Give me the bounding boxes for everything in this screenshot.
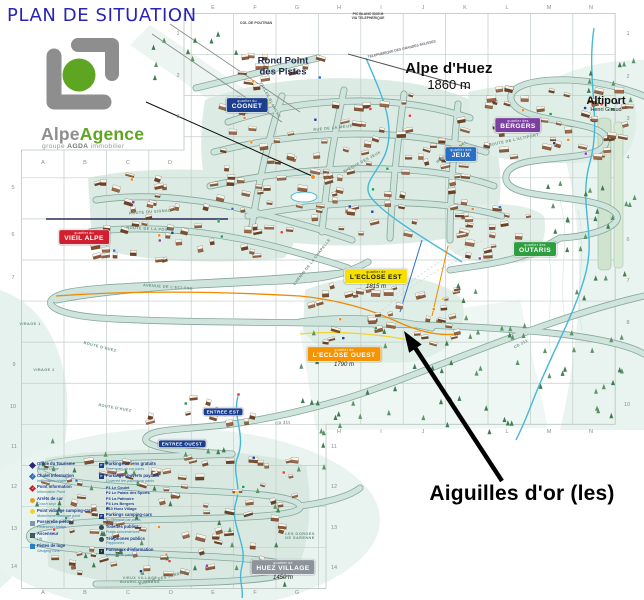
building xyxy=(274,138,280,143)
poi-marker xyxy=(471,208,474,211)
building xyxy=(264,463,268,468)
building xyxy=(135,525,141,528)
building xyxy=(261,76,270,82)
building xyxy=(144,566,151,571)
tree xyxy=(551,203,555,208)
building xyxy=(457,117,466,124)
building xyxy=(371,290,380,297)
building xyxy=(531,252,538,257)
building xyxy=(91,504,96,511)
tree xyxy=(153,75,157,80)
tree xyxy=(558,181,562,186)
building xyxy=(298,185,308,192)
poi-marker xyxy=(106,507,109,510)
building xyxy=(264,186,271,191)
building xyxy=(366,162,371,166)
poi-marker xyxy=(522,109,525,112)
building xyxy=(323,340,329,345)
tree xyxy=(216,31,220,36)
building xyxy=(253,106,262,109)
building xyxy=(132,221,139,227)
building xyxy=(364,141,371,148)
building xyxy=(228,175,235,180)
building xyxy=(69,519,73,525)
resort-map-canvas xyxy=(0,0,644,600)
poi-marker xyxy=(478,257,481,260)
building xyxy=(257,190,263,194)
building xyxy=(226,419,234,426)
poi-marker xyxy=(184,402,187,405)
building xyxy=(185,411,191,416)
building xyxy=(189,395,197,400)
poi-marker xyxy=(168,560,171,563)
building xyxy=(239,108,246,115)
building xyxy=(526,214,531,218)
building xyxy=(92,252,101,259)
building xyxy=(253,224,258,230)
building xyxy=(194,223,201,228)
building xyxy=(461,174,470,179)
building xyxy=(264,63,269,69)
building xyxy=(485,102,493,109)
building xyxy=(375,312,381,317)
ice-rink xyxy=(291,192,317,202)
poi-marker xyxy=(129,464,132,467)
building xyxy=(291,457,299,463)
poi-marker xyxy=(215,407,218,410)
building xyxy=(288,68,298,75)
building xyxy=(238,71,247,75)
building xyxy=(438,138,445,143)
building xyxy=(288,474,293,478)
tree xyxy=(487,429,491,434)
building xyxy=(421,335,428,340)
poi-marker xyxy=(252,80,255,83)
poi-marker xyxy=(584,107,587,110)
building xyxy=(402,169,410,174)
building xyxy=(167,225,174,231)
building xyxy=(101,253,110,259)
poi-marker xyxy=(139,570,142,573)
building xyxy=(550,138,556,141)
building xyxy=(521,96,529,102)
building xyxy=(249,249,254,255)
building xyxy=(256,63,264,69)
poi-marker xyxy=(220,235,223,238)
poi-marker xyxy=(113,249,116,252)
building xyxy=(565,127,572,134)
building xyxy=(603,148,611,153)
building xyxy=(442,157,446,162)
building xyxy=(448,188,456,195)
building xyxy=(593,153,602,160)
building xyxy=(165,233,170,239)
building xyxy=(459,164,469,168)
building xyxy=(209,414,217,421)
building xyxy=(536,106,544,112)
poi-marker xyxy=(369,108,372,111)
building xyxy=(397,131,406,138)
building xyxy=(69,560,76,566)
building xyxy=(277,175,286,180)
poi-marker xyxy=(549,113,552,116)
poi-marker xyxy=(171,231,174,234)
poi-marker xyxy=(386,167,389,170)
building xyxy=(540,118,548,123)
building xyxy=(240,208,245,213)
poi-marker xyxy=(339,318,342,321)
building xyxy=(491,244,496,248)
building xyxy=(465,217,473,222)
poi-marker xyxy=(441,298,444,301)
building xyxy=(499,147,509,153)
poi-marker xyxy=(252,456,255,459)
building xyxy=(236,97,242,103)
building xyxy=(549,88,555,93)
building xyxy=(90,546,95,551)
building xyxy=(226,458,234,464)
building xyxy=(229,129,237,135)
building xyxy=(320,348,327,355)
building xyxy=(67,477,72,482)
building xyxy=(155,257,163,262)
building xyxy=(356,288,364,294)
building xyxy=(449,179,456,186)
building xyxy=(287,153,295,160)
building xyxy=(146,419,155,425)
building xyxy=(237,178,244,183)
building xyxy=(515,233,522,239)
building xyxy=(51,556,58,560)
building xyxy=(402,101,406,105)
building xyxy=(147,201,154,207)
building xyxy=(278,502,284,507)
poi-marker xyxy=(348,205,351,208)
building xyxy=(441,306,448,311)
building xyxy=(486,95,496,102)
building xyxy=(256,185,262,189)
building xyxy=(339,226,344,230)
building xyxy=(259,143,268,150)
poi-marker xyxy=(243,117,246,120)
building xyxy=(100,180,106,186)
tree xyxy=(210,38,214,43)
building xyxy=(204,511,210,514)
building xyxy=(113,252,118,258)
poi-marker xyxy=(217,220,220,223)
poi-marker xyxy=(318,76,321,79)
building xyxy=(90,529,99,533)
building xyxy=(455,213,464,217)
poi-marker xyxy=(408,114,411,117)
building xyxy=(205,399,211,406)
building xyxy=(174,204,179,211)
poi-marker xyxy=(461,142,464,145)
tree xyxy=(547,373,551,378)
building xyxy=(368,317,376,324)
building xyxy=(271,515,279,522)
building xyxy=(108,468,117,474)
building xyxy=(278,524,287,530)
building xyxy=(607,132,616,139)
building xyxy=(227,180,235,186)
building xyxy=(130,250,136,256)
building xyxy=(130,206,136,213)
building xyxy=(176,239,182,245)
poi-marker xyxy=(53,528,56,531)
building xyxy=(258,460,263,465)
building xyxy=(248,53,254,58)
building xyxy=(92,511,98,516)
building xyxy=(250,543,256,549)
poi-marker xyxy=(600,103,603,106)
tree xyxy=(234,50,238,55)
tree xyxy=(543,348,547,353)
poi-marker xyxy=(75,479,78,482)
poi-marker xyxy=(371,210,374,213)
tree xyxy=(546,184,550,189)
tree xyxy=(565,247,569,252)
building xyxy=(249,126,257,131)
building xyxy=(102,247,110,253)
building xyxy=(495,86,502,92)
building xyxy=(244,227,251,233)
building xyxy=(465,239,475,247)
poi-marker xyxy=(553,142,556,145)
building xyxy=(384,191,392,197)
building xyxy=(223,409,231,416)
building xyxy=(253,84,260,90)
building xyxy=(224,165,229,171)
building xyxy=(430,144,436,148)
agency-location-marker xyxy=(311,175,316,180)
building xyxy=(321,140,327,144)
building xyxy=(212,534,219,539)
poi-marker xyxy=(165,553,168,556)
poi-marker xyxy=(268,102,271,105)
poi-marker xyxy=(498,206,501,209)
poi-marker xyxy=(158,526,161,529)
building xyxy=(379,128,384,133)
building xyxy=(359,232,364,236)
poi-marker xyxy=(65,517,68,520)
building xyxy=(615,87,624,93)
poi-marker xyxy=(314,118,317,121)
tree xyxy=(301,398,305,403)
building xyxy=(499,131,505,137)
building xyxy=(203,503,208,508)
poi-marker xyxy=(342,337,345,340)
poi-marker xyxy=(158,239,161,242)
building xyxy=(241,54,249,60)
building xyxy=(78,571,83,575)
building xyxy=(426,316,431,322)
building xyxy=(103,225,110,231)
building xyxy=(467,223,473,228)
building xyxy=(396,303,403,310)
building xyxy=(77,495,86,499)
building xyxy=(385,201,391,207)
tree xyxy=(563,366,567,371)
tree xyxy=(299,363,303,368)
poi-marker xyxy=(297,58,300,61)
poi-marker xyxy=(467,150,470,153)
poi-marker xyxy=(432,308,435,311)
building xyxy=(313,153,320,159)
building xyxy=(267,201,273,205)
building xyxy=(323,169,329,173)
building xyxy=(418,153,423,159)
building xyxy=(332,102,339,109)
building xyxy=(178,475,186,480)
building xyxy=(197,246,203,253)
poi-marker xyxy=(250,141,253,144)
building xyxy=(90,242,100,250)
building xyxy=(209,239,214,246)
building xyxy=(103,519,107,523)
building xyxy=(195,474,204,480)
building xyxy=(405,155,412,159)
poi-marker xyxy=(611,108,614,111)
tree xyxy=(553,228,557,233)
building xyxy=(322,291,329,298)
building xyxy=(461,199,467,205)
poi-marker xyxy=(374,327,377,330)
building xyxy=(181,484,188,489)
building xyxy=(286,227,293,232)
poi-marker xyxy=(231,207,234,210)
poi-marker xyxy=(130,178,133,181)
tree xyxy=(575,289,579,294)
building xyxy=(354,105,364,112)
building xyxy=(465,252,471,258)
building xyxy=(445,323,452,328)
building xyxy=(489,225,495,230)
building xyxy=(316,208,322,213)
building xyxy=(265,225,274,229)
building xyxy=(510,154,518,159)
building xyxy=(591,116,597,122)
building xyxy=(384,289,394,296)
building xyxy=(493,124,500,130)
building xyxy=(337,175,342,181)
poi-marker xyxy=(237,393,240,396)
building xyxy=(244,418,249,424)
building xyxy=(419,293,425,298)
building xyxy=(414,332,420,336)
building xyxy=(312,215,318,221)
building xyxy=(347,209,355,216)
poi-marker xyxy=(282,471,285,474)
tree xyxy=(474,289,478,294)
plan-de-situation-map: PLAN DE SITUATION AlpeAgence groupe AGDA… xyxy=(0,0,644,600)
building xyxy=(303,64,309,69)
poi-marker xyxy=(158,234,161,237)
building xyxy=(262,54,267,60)
tree xyxy=(456,283,460,288)
building xyxy=(245,500,253,506)
building xyxy=(489,232,496,238)
poi-marker xyxy=(344,353,347,356)
tree xyxy=(321,442,325,447)
poi-marker xyxy=(280,231,283,234)
poi-marker xyxy=(132,201,135,204)
poi-marker xyxy=(206,564,209,567)
building xyxy=(525,123,530,128)
building xyxy=(388,311,393,316)
poi-marker xyxy=(372,188,375,191)
building xyxy=(500,221,508,227)
building xyxy=(91,553,96,557)
poi-marker xyxy=(584,152,587,155)
tree xyxy=(462,298,466,303)
building xyxy=(412,219,417,225)
building xyxy=(512,118,520,126)
building xyxy=(85,509,91,513)
poi-marker xyxy=(615,102,618,105)
poi-marker xyxy=(242,485,245,488)
building xyxy=(333,198,338,204)
building xyxy=(626,104,634,108)
poi-marker xyxy=(567,138,570,141)
building xyxy=(155,194,161,198)
building xyxy=(454,174,460,178)
building xyxy=(454,329,461,336)
building xyxy=(380,101,390,108)
poi-marker xyxy=(236,491,239,494)
building xyxy=(164,571,173,576)
building xyxy=(164,488,169,491)
